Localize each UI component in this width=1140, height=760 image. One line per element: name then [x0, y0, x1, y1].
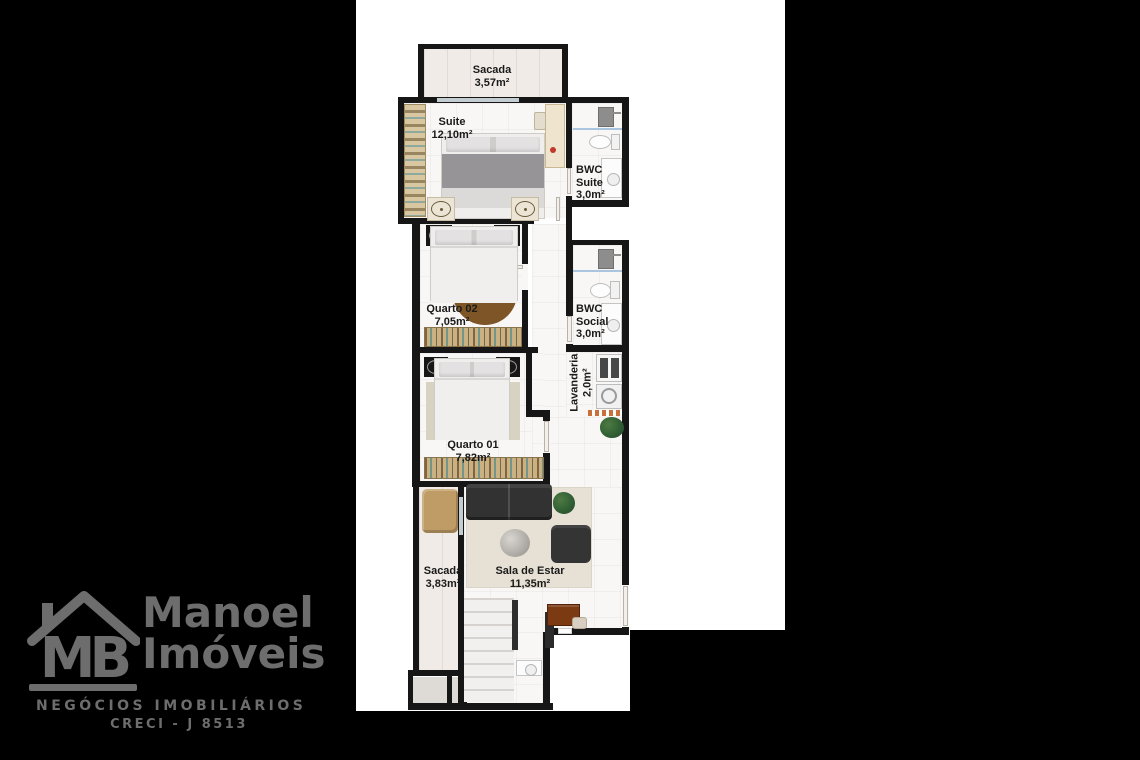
floorplan-canvas: Sacada 3,57m² Suite 12,10m² BWC Suite 3,…	[0, 0, 1140, 760]
door-leaf-quarto-01	[544, 421, 549, 452]
room-name: Sacada	[424, 565, 463, 578]
room-label-quarto-01: Quarto 01 7,82m²	[447, 439, 498, 464]
base-bar-shape	[29, 684, 137, 691]
room-label-suite: Suite 12,10m²	[432, 116, 473, 141]
shower-glass-line	[573, 128, 622, 130]
bed-duvet	[435, 378, 509, 440]
desk-chair	[572, 617, 587, 629]
laundry-basin	[600, 358, 608, 378]
room-label-bwc-suite: BWC Suite 3,0m²	[576, 164, 622, 202]
room-area: 3,0m²	[576, 328, 622, 341]
shower-icon	[598, 249, 614, 269]
bed-pillows	[435, 230, 513, 245]
fan-icon	[515, 201, 535, 217]
wall-segment	[562, 44, 568, 103]
wall-segment	[566, 240, 629, 245]
quarto02-bed	[430, 226, 518, 301]
laundry-sink-cabinet	[596, 354, 622, 382]
wall-segment	[412, 353, 420, 487]
door-leaf-bwc-social	[567, 316, 572, 342]
room-label-sacada-bottom: Sacada 3,83m²	[424, 565, 463, 590]
brand-name: Manoel Imóveis	[142, 592, 326, 674]
door-leaf-bwc-suite	[567, 168, 571, 194]
brand-tagline: NEGÓCIOS IMOBILIÁRIOS	[36, 698, 322, 714]
bed-blanket	[442, 154, 544, 188]
toilet-tank	[611, 134, 620, 150]
room-name: Sala de Estar	[495, 565, 564, 578]
room-area: 11,35m²	[495, 578, 564, 591]
shower-icon	[598, 107, 614, 127]
toilet-icon	[590, 283, 611, 298]
wall-segment	[622, 97, 629, 207]
suite-nightstand-right	[511, 197, 539, 221]
wall-segment	[418, 44, 424, 103]
wall-segment	[526, 353, 532, 415]
wall-segment	[412, 347, 538, 353]
room-name: Quarto 01	[447, 439, 498, 452]
room-area: 3,0m²	[576, 189, 622, 202]
bed-pillows	[439, 362, 505, 377]
logo-monogram: MB	[40, 626, 129, 691]
washer-drum	[601, 388, 617, 404]
washing-machine-icon	[596, 384, 622, 409]
brand-line1: Manoel	[142, 592, 326, 633]
room-area: 7,05m²	[426, 316, 477, 329]
brand-line2: Imóveis	[142, 633, 326, 674]
service-box-left	[413, 677, 447, 703]
armchair	[551, 525, 591, 563]
room-label-sala-de-estar: Sala de Estar 11,35m²	[495, 565, 564, 590]
room-area: 3,57m²	[473, 77, 512, 90]
backdrop-cutout	[630, 630, 786, 711]
room-area: 3,83m²	[424, 578, 463, 591]
suite-sideboard	[545, 104, 565, 168]
room-label-quarto-02: Quarto 02 7,05m²	[426, 303, 477, 328]
basin-icon	[525, 664, 537, 676]
room-area: 7,82m²	[447, 452, 498, 465]
wall-segment	[410, 670, 466, 676]
decor-red-dot	[550, 147, 556, 153]
wall-segment	[418, 44, 568, 49]
laundry-basin	[611, 358, 619, 378]
room-label-sacada-top: Sacada 3,57m²	[473, 64, 512, 89]
room-name: Sacada	[473, 64, 512, 77]
brand-creci: CRECI - J 8513	[36, 717, 322, 732]
hall-sink	[516, 660, 542, 676]
house-monogram-icon: MB	[26, 585, 140, 695]
room-name: Quarto 02	[426, 303, 477, 316]
sliding-door-sala-balcony	[459, 497, 463, 535]
room-area: 2,0m²	[581, 341, 594, 425]
room-label-lavanderia: Lavanderia 2,0m²	[568, 341, 593, 425]
wall-segment	[408, 703, 553, 710]
toilet-icon	[589, 135, 611, 149]
sliding-door-suite-balcony	[437, 98, 519, 102]
door-leaf-entrance	[623, 586, 628, 626]
wall-segment	[622, 240, 629, 632]
toilet-tank	[610, 281, 620, 299]
suite-chair	[534, 112, 546, 130]
suite-nightstand-left	[427, 197, 455, 221]
plant-icon	[553, 492, 575, 514]
room-label-bwc-social: BWC Social 3,0m²	[576, 303, 622, 341]
room-area: 12,10m²	[432, 129, 473, 142]
wall-segment	[412, 218, 420, 353]
quarto01-bed	[434, 358, 510, 438]
stair-railing	[512, 600, 518, 650]
wall-segment	[413, 487, 419, 675]
desk-papers	[558, 628, 572, 634]
bed-duvet	[431, 246, 517, 303]
coffee-table	[500, 529, 530, 557]
room-name: BWC Social	[576, 303, 622, 328]
balcony-armchair	[422, 489, 458, 533]
room-name: BWC Suite	[576, 164, 622, 189]
sofa	[466, 484, 552, 520]
shower-glass-line	[573, 270, 622, 272]
door-leaf-suite	[556, 197, 560, 221]
room-name: Lavanderia	[568, 341, 581, 425]
quarto02-wardrobe	[424, 327, 522, 347]
plant-icon	[600, 417, 624, 438]
suite-closet	[404, 104, 426, 217]
fan-icon	[431, 201, 451, 217]
stairs	[464, 598, 514, 702]
room-name: Suite	[432, 116, 473, 129]
